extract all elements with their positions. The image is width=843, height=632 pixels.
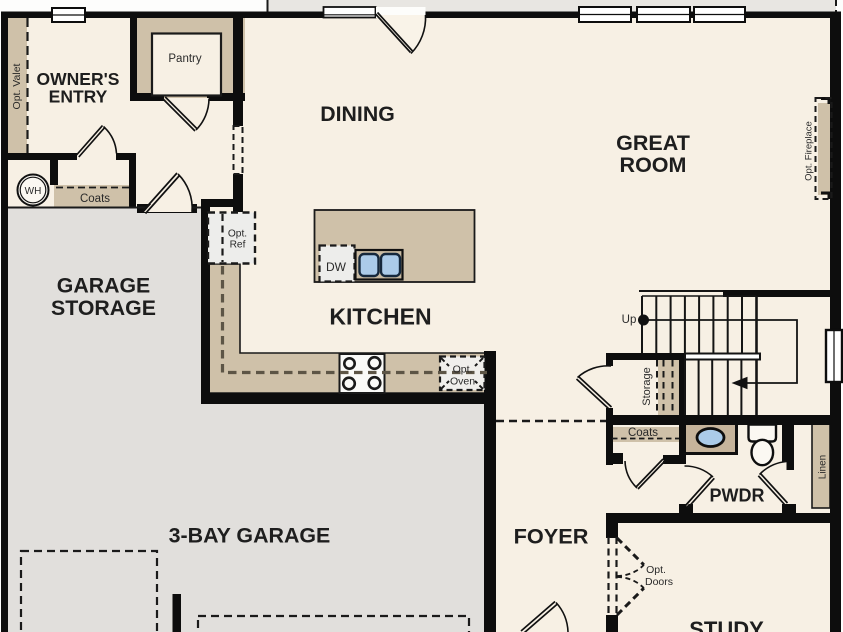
svg-text:Opt. Fireplace: Opt. Fireplace (804, 121, 815, 181)
svg-text:STUDY: STUDY (689, 617, 764, 632)
svg-text:Opt.: Opt. (228, 229, 247, 240)
svg-text:ROOM: ROOM (620, 153, 687, 177)
svg-text:ENTRY: ENTRY (49, 87, 108, 107)
svg-text:Opt.: Opt. (646, 564, 666, 576)
svg-text:GARAGE: GARAGE (57, 274, 150, 298)
svg-text:DINING: DINING (320, 102, 395, 126)
svg-text:Ref: Ref (230, 240, 246, 251)
svg-text:Pantry: Pantry (168, 53, 201, 65)
svg-text:KITCHEN: KITCHEN (329, 304, 431, 330)
svg-text:Linen: Linen (818, 455, 829, 479)
svg-text:Opt.: Opt. (453, 364, 473, 376)
svg-text:FOYER: FOYER (514, 524, 589, 549)
svg-text:Opt. Valet: Opt. Valet (11, 63, 23, 109)
svg-text:DW: DW (326, 260, 347, 274)
svg-text:Storage: Storage (641, 367, 653, 406)
svg-text:WH: WH (25, 186, 42, 197)
svg-text:PWDR: PWDR (710, 486, 765, 506)
svg-text:Coats: Coats (628, 427, 658, 439)
svg-text:Coats: Coats (80, 193, 110, 205)
svg-text:GREAT: GREAT (616, 131, 690, 155)
svg-text:Oven: Oven (450, 376, 475, 388)
svg-text:3-BAY GARAGE: 3-BAY GARAGE (169, 524, 331, 548)
svg-text:STORAGE: STORAGE (51, 296, 156, 320)
svg-text:Up: Up (622, 314, 637, 326)
svg-text:Doors: Doors (645, 576, 673, 588)
